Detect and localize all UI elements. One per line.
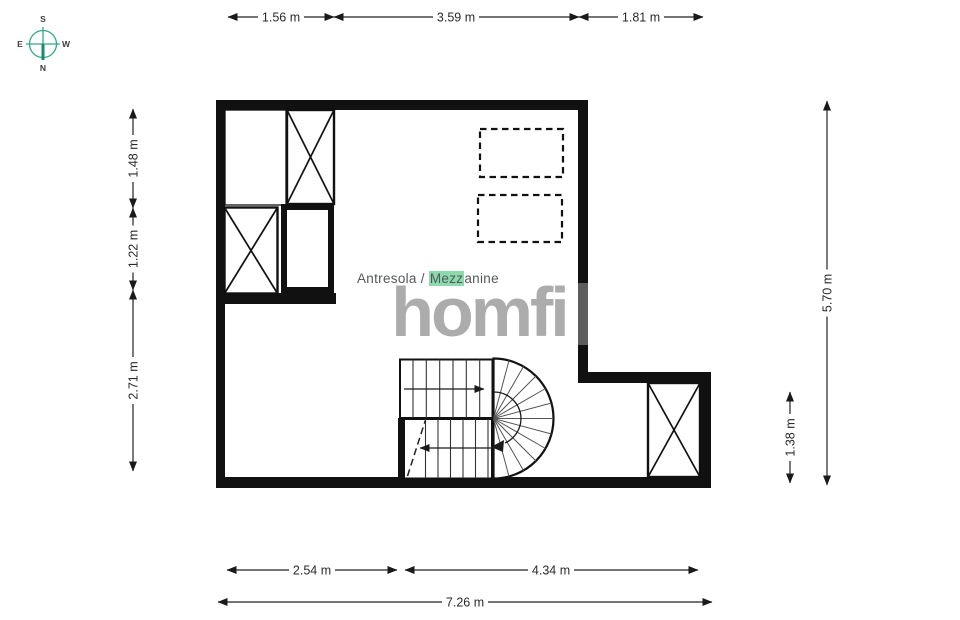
- svg-text:2.71 m: 2.71 m: [127, 361, 141, 399]
- compass-north: N: [40, 63, 46, 73]
- svg-text:5.70 m: 5.70 m: [821, 274, 835, 312]
- dimension-bottom-2: 4.34 m: [405, 563, 698, 578]
- spiral-staircase: [398, 359, 554, 480]
- floorplan-canvas: homfi 1.56 m 3.59 m 1.81 m 1.48 m: [0, 0, 960, 620]
- window-x-box-top: [287, 110, 334, 204]
- dimension-top-3: 1.81 m: [579, 10, 703, 25]
- dimension-bottom-1: 2.54 m: [227, 563, 397, 578]
- window-x-box-left: [225, 208, 278, 294]
- dashed-opening-2: [478, 195, 562, 242]
- dashed-opening-1: [480, 129, 563, 177]
- skylight-plain-box: [225, 110, 286, 205]
- svg-text:1.56 m: 1.56 m: [262, 11, 300, 25]
- compass-icon: S N E W: [17, 14, 71, 73]
- svg-text:1.81 m: 1.81 m: [622, 11, 660, 25]
- svg-text:2.54 m: 2.54 m: [293, 564, 331, 578]
- svg-text:1.22 m: 1.22 m: [127, 230, 141, 268]
- shaft-thick-box: [284, 207, 331, 290]
- compass-west: W: [62, 39, 71, 49]
- svg-text:1.48 m: 1.48 m: [127, 139, 141, 177]
- stair-wall-stub: [398, 418, 405, 479]
- dimension-top-1: 1.56 m: [228, 10, 334, 25]
- dimension-left-1: 1.48 m: [126, 109, 141, 208]
- svg-text:1.38 m: 1.38 m: [784, 418, 798, 456]
- dimension-right-total: 5.70 m: [820, 101, 835, 485]
- room-label-highlight: Mezz: [429, 271, 464, 286]
- dimension-bottom-total: 7.26 m: [218, 595, 712, 610]
- watermark-wall-overlap: [577, 283, 589, 345]
- window-x-box-right: [648, 383, 700, 477]
- stair-lower-flight: [404, 419, 492, 479]
- dimension-right-2: 1.38 m: [783, 392, 798, 483]
- compass-east: E: [17, 39, 23, 49]
- svg-text:4.34 m: 4.34 m: [532, 564, 570, 578]
- dimension-top-2: 3.59 m: [334, 10, 579, 25]
- room-label-pre: Antresola /: [357, 271, 429, 286]
- floorplan-svg: homfi 1.56 m 3.59 m 1.81 m 1.48 m: [0, 0, 960, 620]
- dimension-left-3: 2.71 m: [126, 290, 141, 471]
- dimension-left-2: 1.22 m: [126, 208, 141, 290]
- room-label: Antresola / Mezzanine: [357, 271, 499, 286]
- compass-south: S: [40, 14, 46, 24]
- svg-text:7.26 m: 7.26 m: [446, 596, 484, 610]
- room-label-post: anine: [464, 271, 499, 286]
- svg-text:3.59 m: 3.59 m: [437, 11, 475, 25]
